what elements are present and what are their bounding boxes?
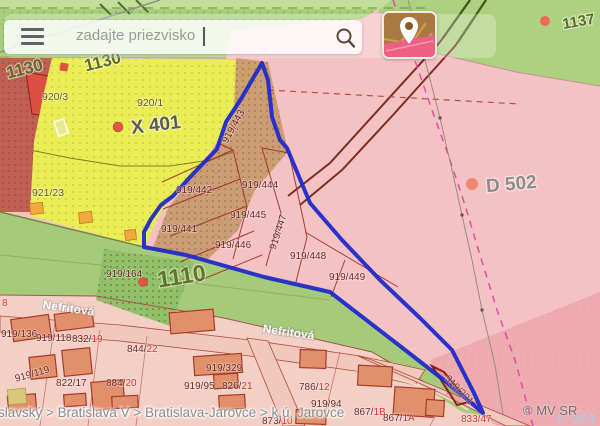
parcel-label: 919/444 bbox=[242, 180, 279, 191]
parcel-label: 919/445 bbox=[230, 210, 267, 221]
minimap-layers-button[interactable] bbox=[382, 11, 437, 59]
map-app-screen: 1130 1130 1137 X 401 D 502 1110 920/1 92… bbox=[0, 0, 600, 426]
parcel-label: 919/446 bbox=[215, 240, 252, 251]
zone-label: 920/3 bbox=[42, 91, 68, 103]
parcel-label: 919/449 bbox=[329, 272, 366, 283]
menu-icon[interactable] bbox=[21, 28, 44, 45]
address-label: 8 bbox=[2, 298, 8, 309]
zone-label: D 502 bbox=[485, 172, 537, 197]
address-label: 826/21 bbox=[222, 381, 253, 392]
search-icon[interactable] bbox=[332, 25, 358, 51]
parcel-label: 919/441 bbox=[161, 224, 198, 235]
search-placeholder: zadajte priezvisko bbox=[76, 27, 195, 44]
address-label: 833/47 bbox=[461, 414, 492, 425]
cadastral-map-canvas[interactable]: 1130 1130 1137 X 401 D 502 1110 920/1 92… bbox=[0, 0, 600, 426]
address-label: 867/1A bbox=[383, 413, 415, 424]
address-label: 919/329 bbox=[206, 363, 243, 374]
minimap-thumbnail bbox=[384, 13, 435, 57]
address-label: 844/22 bbox=[127, 344, 158, 355]
zone-label: 920/1 bbox=[137, 97, 163, 109]
text-cursor bbox=[203, 27, 205, 46]
breadcrumb[interactable]: islavský > Bratislava V > Bratislava-Jar… bbox=[0, 405, 344, 420]
address-label: 867/1B bbox=[354, 407, 386, 418]
map-attribution: © MV SR bbox=[523, 403, 577, 418]
parcel-label: 919/442 bbox=[176, 185, 213, 196]
address-label: 884/20 bbox=[106, 378, 137, 389]
address-label: 919/136 bbox=[1, 329, 38, 340]
address-label: 786/12 bbox=[299, 382, 330, 393]
zone-label: 921/23 bbox=[32, 187, 64, 199]
address-label: 919/95 bbox=[184, 381, 215, 392]
parcel-label: 919/448 bbox=[290, 251, 327, 262]
address-label: 919/118 bbox=[36, 333, 72, 344]
address-label: 822/17 bbox=[56, 378, 87, 389]
address-label: 832/19 bbox=[72, 334, 103, 345]
search-input[interactable]: zadajte priezvisko bbox=[4, 20, 362, 54]
parcel-label: 919/164 bbox=[106, 269, 143, 280]
